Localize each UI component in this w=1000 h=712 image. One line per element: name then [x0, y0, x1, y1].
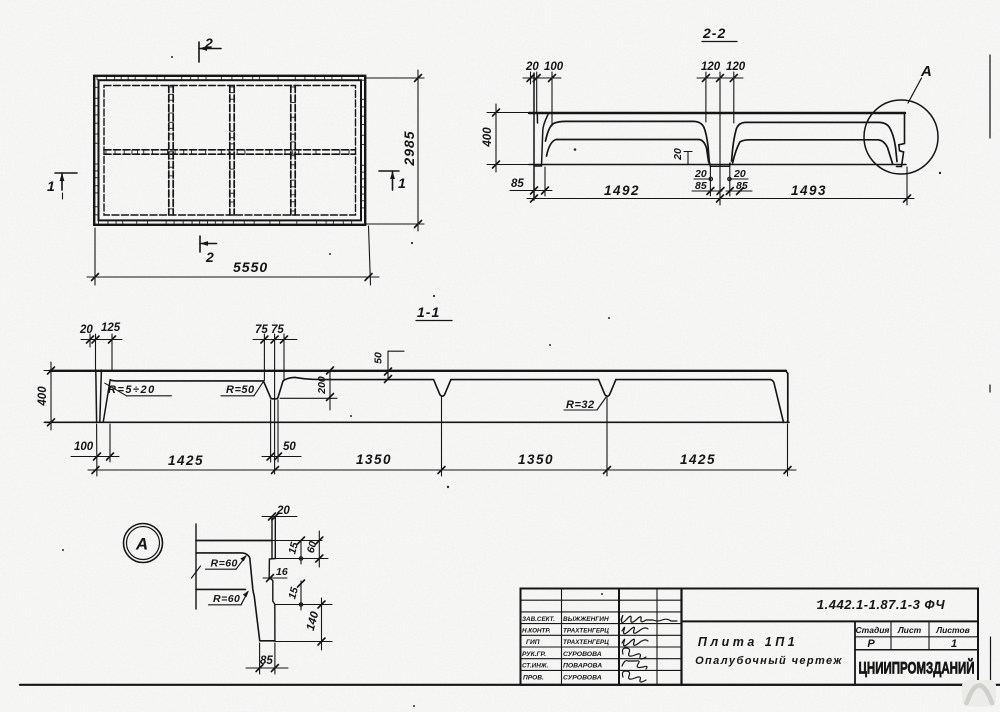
- svg-text:85: 85: [260, 655, 273, 667]
- svg-text:РУК.ГР.: РУК.ГР.: [522, 651, 546, 658]
- svg-text:1350: 1350: [518, 452, 554, 467]
- svg-text:1493: 1493: [791, 183, 827, 198]
- svg-text:1: 1: [47, 178, 55, 194]
- svg-text:R=50: R=50: [226, 384, 255, 396]
- svg-text:2: 2: [205, 249, 214, 265]
- svg-text:140: 140: [305, 610, 322, 632]
- svg-text:50: 50: [373, 352, 385, 364]
- svg-text:400: 400: [37, 386, 49, 407]
- svg-text:1.442.1-1.87.1-3 ФЧ: 1.442.1-1.87.1-3 ФЧ: [817, 597, 945, 612]
- svg-text:85: 85: [695, 180, 707, 192]
- svg-text:20: 20: [525, 61, 539, 73]
- svg-text:16: 16: [276, 566, 288, 578]
- svg-text:1: 1: [951, 638, 957, 650]
- svg-text:ПРОВ.: ПРОВ.: [523, 674, 544, 681]
- svg-text:R=60: R=60: [211, 558, 238, 570]
- svg-text:120: 120: [726, 61, 746, 73]
- svg-text:Н.КОНТР.: Н.КОНТР.: [522, 628, 551, 635]
- svg-text:ЦНИИПРОМЗДАНИЙ: ЦНИИПРОМЗДАНИЙ: [859, 659, 975, 678]
- svg-text:20: 20: [276, 505, 290, 517]
- svg-text:100: 100: [74, 441, 94, 453]
- svg-text:СТ.ИНЖ.: СТ.ИНЖ.: [522, 663, 549, 670]
- svg-text:A: A: [920, 63, 932, 80]
- svg-text:75: 75: [255, 324, 268, 336]
- svg-text:Р: Р: [867, 638, 875, 650]
- svg-text:400: 400: [482, 127, 494, 148]
- svg-text:1425: 1425: [680, 452, 716, 467]
- svg-text:A: A: [135, 535, 148, 554]
- svg-text:Стадия: Стадия: [856, 625, 890, 635]
- svg-text:СУРОВОВА: СУРОВОВА: [563, 651, 602, 658]
- svg-text:5550: 5550: [233, 259, 268, 275]
- svg-text:ТРАХТЕНГЕРЦ: ТРАХТЕНГЕРЦ: [563, 628, 609, 635]
- svg-text:2985: 2985: [401, 130, 417, 166]
- svg-text:Опалубочный чертеж: Опалубочный чертеж: [695, 655, 843, 667]
- svg-text:R=5÷20: R=5÷20: [108, 384, 156, 396]
- svg-text:R=60: R=60: [213, 593, 240, 605]
- svg-text:ВЫЖЖЕНГИН: ВЫЖЖЕНГИН: [563, 616, 609, 623]
- svg-text:2-2: 2-2: [702, 25, 726, 41]
- svg-text:20: 20: [733, 168, 746, 180]
- svg-text:100: 100: [544, 61, 564, 73]
- svg-text:125: 125: [101, 322, 121, 334]
- svg-text:ГИП: ГИП: [526, 639, 540, 646]
- svg-text:1492: 1492: [604, 183, 640, 198]
- svg-text:20: 20: [79, 324, 93, 336]
- svg-text:Плита 1П1: Плита 1П1: [698, 635, 798, 649]
- svg-text:1-1: 1-1: [417, 304, 440, 320]
- svg-text:1: 1: [398, 175, 406, 191]
- svg-text:ЗАВ.СЕКТ.: ЗАВ.СЕКТ.: [522, 616, 555, 623]
- svg-text:ПОВАРОВА: ПОВАРОВА: [563, 663, 602, 670]
- svg-text:15: 15: [286, 586, 301, 601]
- svg-text:1350: 1350: [356, 452, 392, 467]
- svg-text:20: 20: [694, 168, 707, 180]
- svg-text:85: 85: [736, 180, 748, 192]
- svg-text:75: 75: [271, 324, 284, 336]
- svg-text:СУРОВОВА: СУРОВОВА: [563, 674, 602, 681]
- svg-text:50: 50: [283, 441, 296, 453]
- svg-text:20: 20: [672, 148, 684, 161]
- svg-text:Лист: Лист: [897, 625, 922, 635]
- svg-text:200: 200: [316, 376, 328, 395]
- svg-text:2: 2: [204, 35, 213, 51]
- svg-text:85: 85: [511, 178, 524, 190]
- svg-text:R=32: R=32: [566, 399, 595, 411]
- svg-text:1425: 1425: [168, 453, 204, 468]
- svg-text:120: 120: [701, 61, 721, 73]
- svg-text:ТРАХТЕНГЕРЦ: ТРАХТЕНГЕРЦ: [563, 639, 609, 646]
- svg-text:Листов: Листов: [935, 625, 970, 635]
